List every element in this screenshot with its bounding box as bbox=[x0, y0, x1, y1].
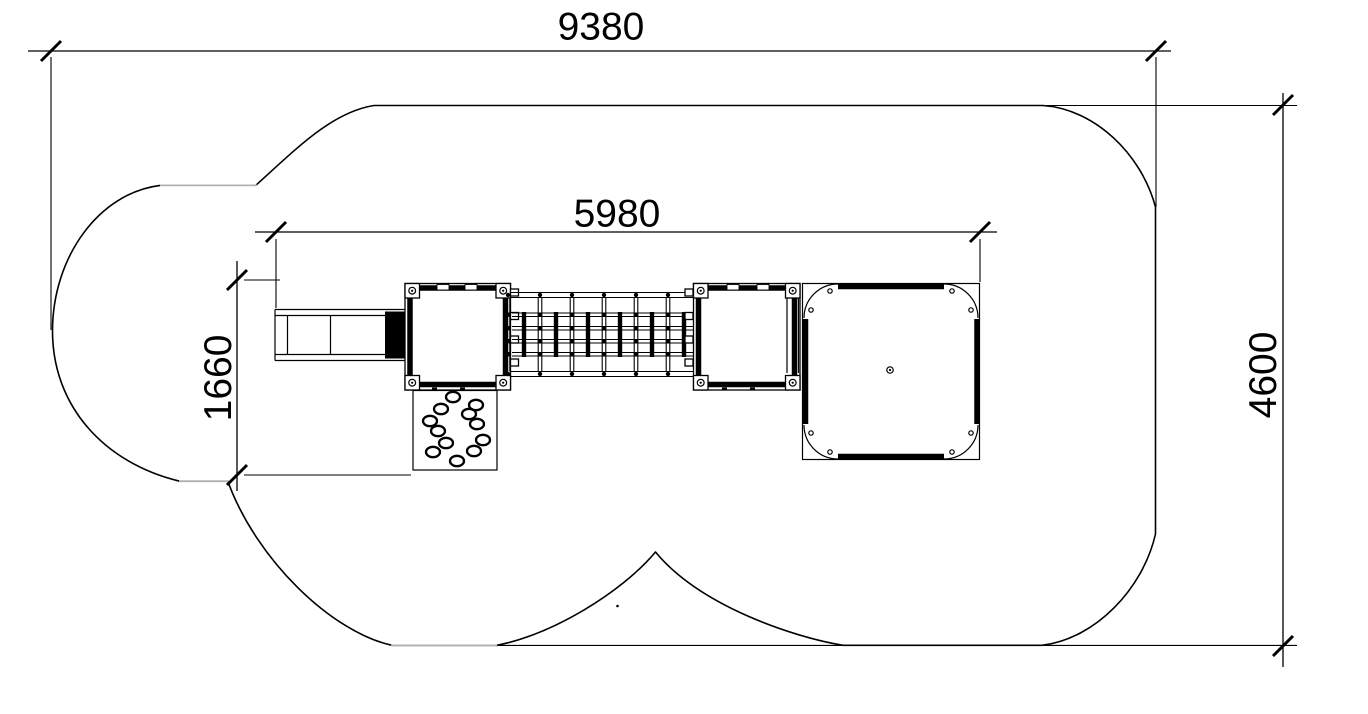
plank-notch bbox=[757, 285, 769, 291]
plan-drawing: 9380 5980 1660 4600 bbox=[0, 0, 1368, 714]
large-deck bbox=[803, 284, 980, 460]
plank-notch bbox=[437, 285, 449, 291]
plank-notch bbox=[727, 285, 739, 291]
net-anchor-lugs bbox=[511, 289, 519, 366]
right-tower-platform bbox=[685, 284, 800, 391]
drawing-canvas: 9380 5980 1660 4600 bbox=[0, 0, 1368, 714]
dimension-label-structure-depth: 1660 bbox=[197, 335, 240, 422]
climbing-holds bbox=[423, 392, 490, 466]
dimension-label-overall-depth: 4600 bbox=[1242, 332, 1285, 419]
dimension-label-overall-width: 9380 bbox=[558, 6, 645, 49]
edge-mark bbox=[722, 388, 727, 391]
access-ramp bbox=[275, 310, 405, 361]
climbing-hold-wall bbox=[413, 391, 497, 471]
center-fitting bbox=[887, 367, 893, 373]
left-tower-platform bbox=[405, 284, 519, 391]
dimension-overall-width: 9380 bbox=[28, 6, 1171, 331]
corner-plates bbox=[804, 284, 978, 459]
ramp-landing-block bbox=[385, 312, 405, 359]
edge-mark bbox=[750, 388, 755, 391]
dimension-structure-depth: 1660 bbox=[197, 261, 411, 491]
plank-notch bbox=[465, 285, 477, 291]
stray-dot bbox=[616, 605, 619, 608]
rope-net-bridge bbox=[506, 293, 694, 377]
dimension-platform-span: 5980 bbox=[255, 193, 997, 309]
dimension-overall-depth: 4600 bbox=[497, 93, 1297, 667]
dimension-label-platform-span: 5980 bbox=[574, 193, 661, 236]
net-battens bbox=[522, 312, 686, 357]
